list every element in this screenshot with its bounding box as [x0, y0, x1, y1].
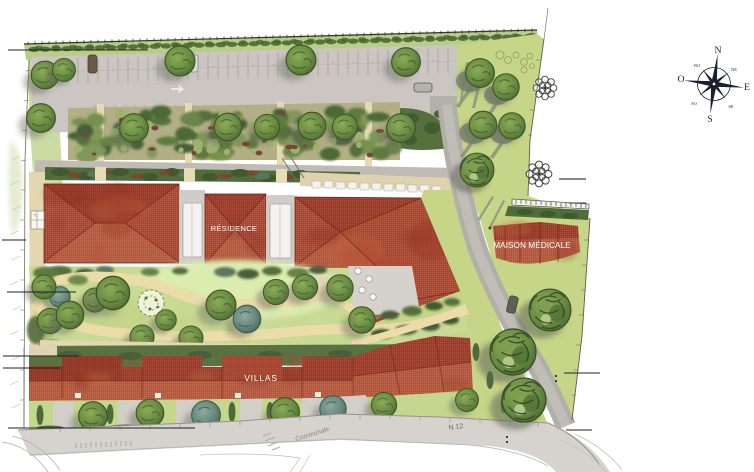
svg-text:SO: SO [691, 101, 698, 106]
svg-text:SE: SE [728, 104, 734, 109]
svg-text:RÉSIDENCE: RÉSIDENCE [211, 224, 257, 233]
svg-text:E: E [744, 82, 750, 93]
svg-text:MAISON MÉDICALE: MAISON MÉDICALE [493, 240, 571, 250]
svg-text:O: O [677, 74, 684, 85]
svg-text:S: S [707, 114, 712, 125]
svg-text:VILLAS: VILLAS [244, 373, 278, 383]
svg-text:N: N [714, 45, 721, 56]
svg-text:NO: NO [694, 63, 701, 68]
svg-text:NE: NE [731, 67, 737, 72]
